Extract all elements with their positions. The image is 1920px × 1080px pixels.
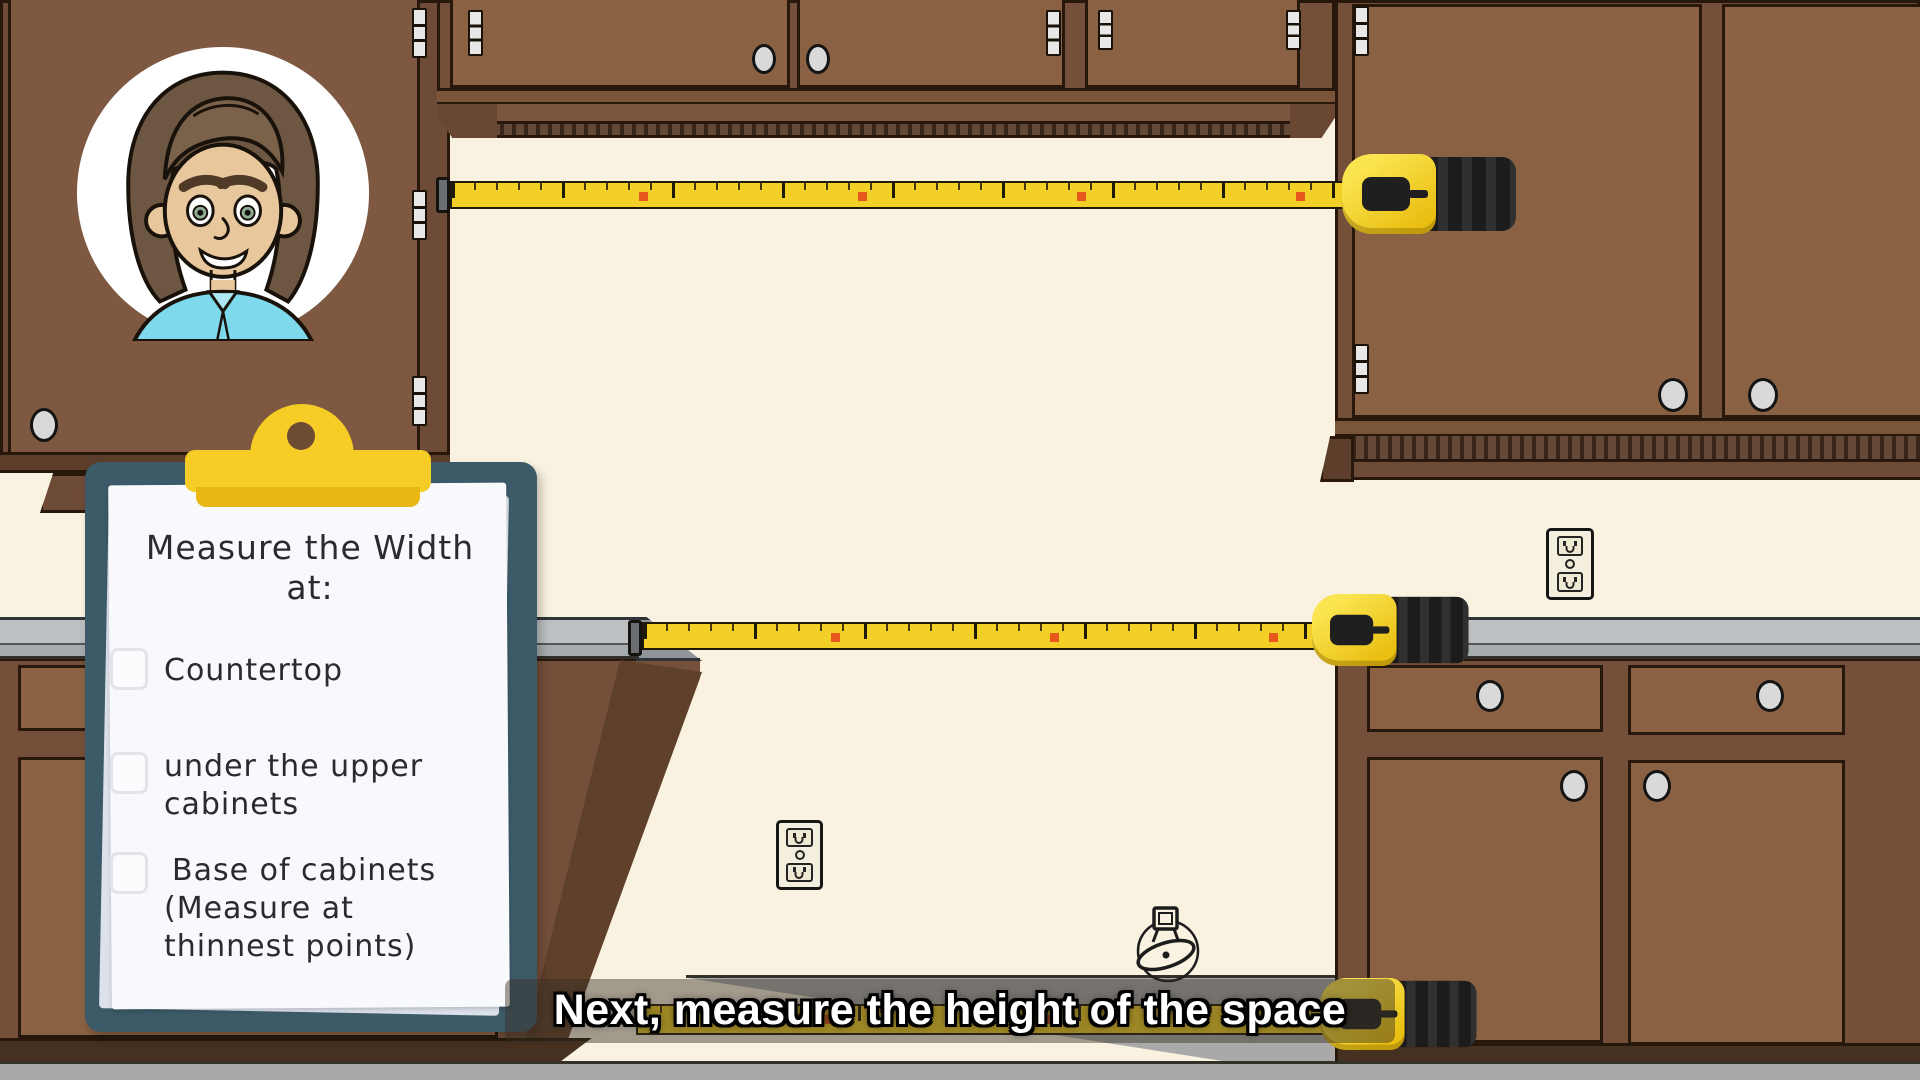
outlet-socket <box>1557 572 1584 592</box>
upper-center-soffit <box>452 104 1318 124</box>
upper-center-door-1 <box>450 0 790 88</box>
tape-measure-countertop <box>642 622 1330 650</box>
hinge-icon <box>468 10 483 56</box>
checklist-item-under-upper-cabinets: under the upper cabinets <box>164 748 494 824</box>
hinge-icon <box>1098 10 1113 50</box>
tape-measure-case <box>1342 154 1518 234</box>
upper-right-rail <box>1335 418 1920 436</box>
cabinet-knob <box>30 408 58 442</box>
tape-case-grip <box>1394 981 1477 1048</box>
presenter-avatar <box>75 45 371 341</box>
item-line: (Measure at <box>164 891 354 926</box>
base-right-drawer-2 <box>1628 665 1845 735</box>
upper-right-end-cap <box>1320 436 1354 482</box>
tape-hook <box>628 620 642 656</box>
floor-front <box>0 1061 1920 1080</box>
checklist-title-line1: Measure the Width <box>146 528 474 567</box>
hinge-icon <box>1354 6 1369 56</box>
upper-center-crown-molding <box>452 124 1318 138</box>
upper-right-crown-molding <box>1352 436 1920 462</box>
kitchen-measuring-scene: Measure the Width at: Countertop under t… <box>0 0 1920 1080</box>
tape-case-grip <box>1424 157 1516 231</box>
upper-center-door-2 <box>797 0 1065 88</box>
tape-case-lock <box>1330 615 1373 646</box>
item-line: under the upper <box>164 749 423 784</box>
cabinet-knob <box>752 44 776 74</box>
base-right-door-2 <box>1628 760 1845 1045</box>
upper-center-door-3 <box>1085 0 1300 88</box>
checklist-title: Measure the Width at: <box>120 528 500 608</box>
outlet-screw <box>1565 559 1575 569</box>
hinge-icon <box>412 376 427 426</box>
power-outlet-icon <box>1546 528 1594 600</box>
upper-right-bottom-lip <box>1352 462 1920 480</box>
item-line: thinnest points) <box>164 929 416 964</box>
checklist-item-countertop: Countertop <box>164 652 494 690</box>
hinge-icon <box>1046 10 1061 56</box>
hinge-icon <box>412 8 427 58</box>
floor-wall-line <box>686 975 1338 978</box>
tape-measure-case <box>1312 594 1470 666</box>
checkbox-under-upper-cabinets[interactable] <box>110 752 148 794</box>
cabinet-knob <box>806 44 830 74</box>
cabinet-knob <box>1748 378 1778 412</box>
clipboard-clip-hole <box>287 422 315 450</box>
hinge-icon <box>412 190 427 240</box>
item-line: Base of cabinets <box>172 853 436 888</box>
checkbox-base-of-cabinets[interactable] <box>110 852 148 894</box>
cabinet-knob <box>1658 378 1688 412</box>
item-line: Countertop <box>164 653 343 688</box>
cabinet-knob <box>1560 770 1588 802</box>
checklist-title-line2: at: <box>286 568 333 607</box>
item-line: cabinets <box>164 787 299 822</box>
checkbox-countertop[interactable] <box>110 648 148 690</box>
upper-center-rail <box>437 88 1335 104</box>
power-outlet-icon <box>776 820 823 890</box>
hinge-icon <box>1354 344 1369 394</box>
upper-right-door-2 <box>1722 4 1920 418</box>
hinge-icon <box>1286 10 1301 50</box>
outlet-socket <box>786 828 812 847</box>
soffit-end-right <box>1290 104 1335 138</box>
tape-measure-upper <box>450 181 1350 209</box>
checklist-item-base-of-cabinets: Base of cabinets (Measure at thinnest po… <box>172 852 502 966</box>
caption-text: Next, measure the height of the space <box>505 986 1395 1035</box>
cabinet-knob <box>1643 770 1671 802</box>
tape-case-grip <box>1386 597 1469 664</box>
cabinet-knob <box>1476 680 1504 712</box>
tape-case-lock <box>1362 177 1410 211</box>
outlet-socket <box>786 863 812 882</box>
clipboard-clip-lip <box>196 487 420 507</box>
cabinet-knob <box>1756 680 1784 712</box>
outlet-screw <box>795 850 805 860</box>
tape-hook <box>436 177 450 213</box>
outlet-socket <box>1557 536 1584 556</box>
